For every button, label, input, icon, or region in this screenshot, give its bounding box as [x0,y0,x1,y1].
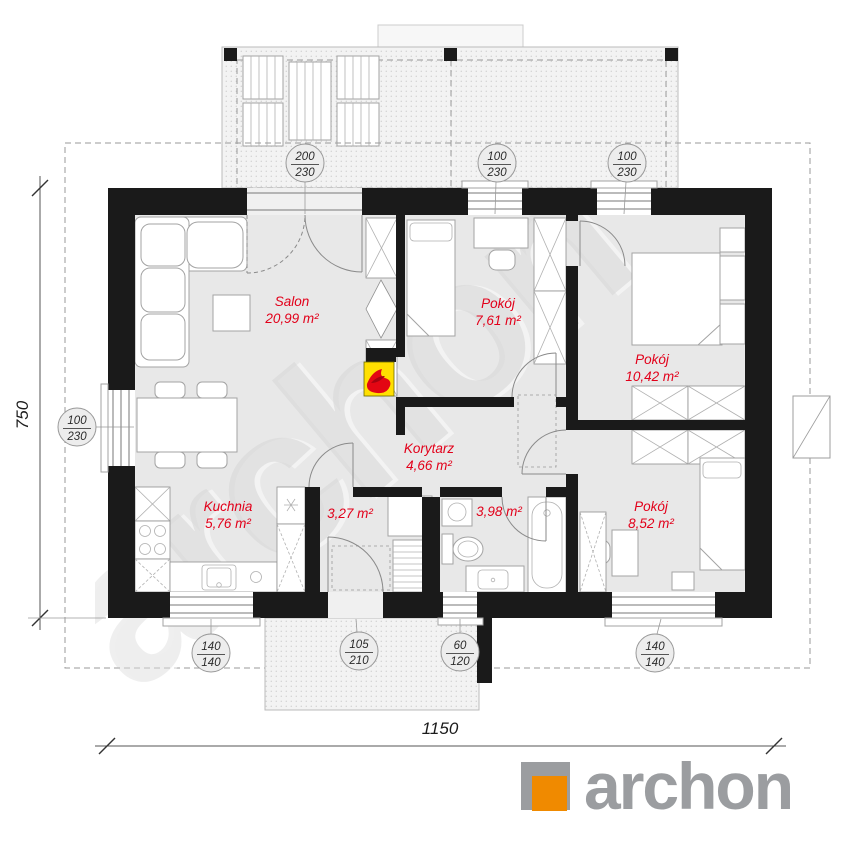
svg-text:8,52 m²: 8,52 m² [628,516,674,531]
floor-plan-canvas: archon archon [0,0,853,853]
entrance-door-opening [328,592,383,618]
svg-text:10,42 m²: 10,42 m² [625,369,679,384]
room-label-bedroom3: Pokój [634,499,669,514]
svg-text:7,61 m²: 7,61 m² [475,313,521,328]
svg-text:60: 60 [454,640,467,652]
svg-text:105: 105 [349,639,369,651]
window-left [101,384,135,472]
bathtub [528,497,566,594]
nightstand [720,228,745,252]
window-kitchen [163,592,260,626]
svg-text:140: 140 [201,657,221,669]
room-label-salon: Salon [275,294,310,309]
stove [135,521,170,559]
svg-text:200: 200 [294,151,315,163]
svg-text:100: 100 [617,151,637,163]
logo-orange-square [532,776,567,811]
svg-text:210: 210 [348,655,369,667]
desk [474,218,528,248]
svg-text:230: 230 [616,167,637,179]
svg-text:5,76 m²: 5,76 m² [205,516,251,531]
window-bedroom3 [605,592,722,626]
archon-logo-text: archon [584,761,792,811]
exterior-side-object [793,396,830,458]
toilet-tank [442,534,453,564]
svg-text:120: 120 [450,656,470,668]
room-label-bathroom: 3,98 m² [476,504,522,519]
svg-text:140: 140 [645,641,665,653]
overall-width-label: 1150 [422,719,459,738]
svg-text:140: 140 [645,657,665,669]
fireplace-icon [364,362,394,396]
floor-plan-page: archon archon [0,0,853,853]
single-bed [407,220,455,336]
dimension-left: 750 [13,176,106,630]
roof-outline [378,25,523,48]
double-bed [632,253,720,345]
overall-depth-label: 750 [13,400,32,429]
svg-text:230: 230 [486,167,507,179]
attic-ladder [393,540,427,592]
bed [700,458,745,570]
room-label-bedroom1: Pokój [481,296,516,311]
dim-circle-window-bedroom3: 140 140 [636,619,674,672]
svg-text:4,66 m²: 4,66 m² [406,458,452,473]
svg-text:100: 100 [67,415,87,427]
kitchen-counter [170,562,277,592]
svg-text:230: 230 [66,431,87,443]
room-label-utility: 3,27 m² [327,506,373,521]
svg-text:20,99 m²: 20,99 m² [264,311,319,326]
window-bathroom [438,592,483,625]
nightstand [672,572,694,590]
svg-text:230: 230 [294,167,315,179]
room-label-hall: Korytarz [404,441,455,456]
archon-logo-icon [521,762,572,811]
bedroom2-furniture [632,228,745,420]
desk-chair [489,250,515,270]
terrace-door-opening [247,188,362,215]
coffee-table [213,295,250,331]
room-label-kitchen: Kuchnia [204,499,253,514]
archon-logo: archon [521,761,792,811]
desk [612,530,638,576]
svg-text:100: 100 [487,151,507,163]
svg-text:140: 140 [201,641,221,653]
room-label-bedroom2: Pokój [635,352,670,367]
